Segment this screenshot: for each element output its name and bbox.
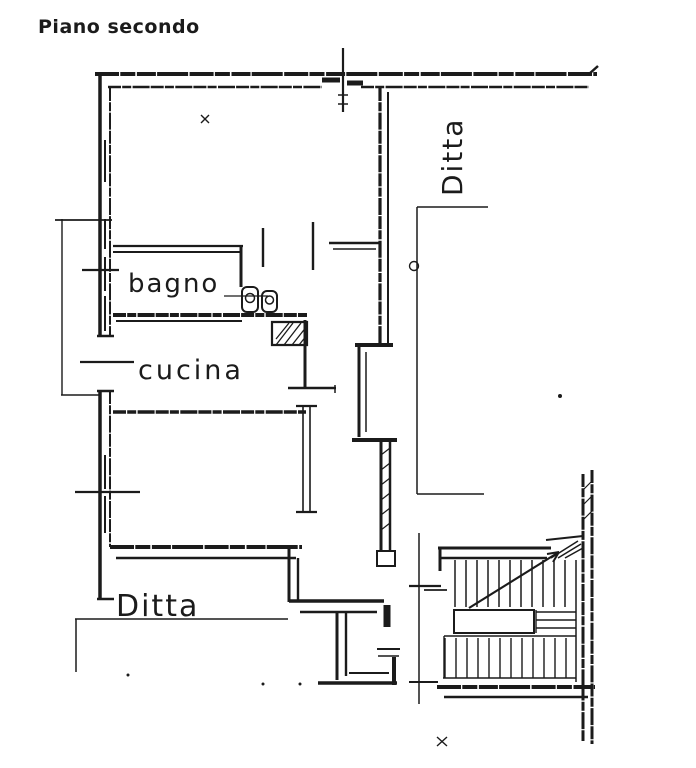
- wall-exterior: [95, 66, 598, 600]
- floor-plan-drawing: Piano secondo bagno cucina Ditta Ditta: [0, 0, 696, 768]
- page-title: Piano secondo: [38, 16, 200, 38]
- unit-right-boundary: [410, 207, 489, 494]
- floor-plan-page: Piano secondo bagno cucina Ditta Ditta: [0, 0, 696, 768]
- label-bagno: bagno: [128, 269, 219, 299]
- label-ditta-lower: Ditta: [116, 589, 199, 624]
- room-middle-walls: [110, 406, 317, 558]
- shower-hatched: [272, 322, 307, 345]
- staircase: [409, 470, 595, 744]
- wall-central-divider: [352, 88, 397, 566]
- flue-marker: [322, 48, 363, 112]
- unit-lower-boundary: [75, 619, 288, 672]
- corridor-walls: [289, 548, 400, 685]
- label-ditta-right: Ditta: [436, 118, 469, 196]
- label-cucina: cucina: [138, 355, 244, 386]
- scan-marks: [127, 115, 563, 746]
- bathroom-fixtures: [224, 287, 277, 312]
